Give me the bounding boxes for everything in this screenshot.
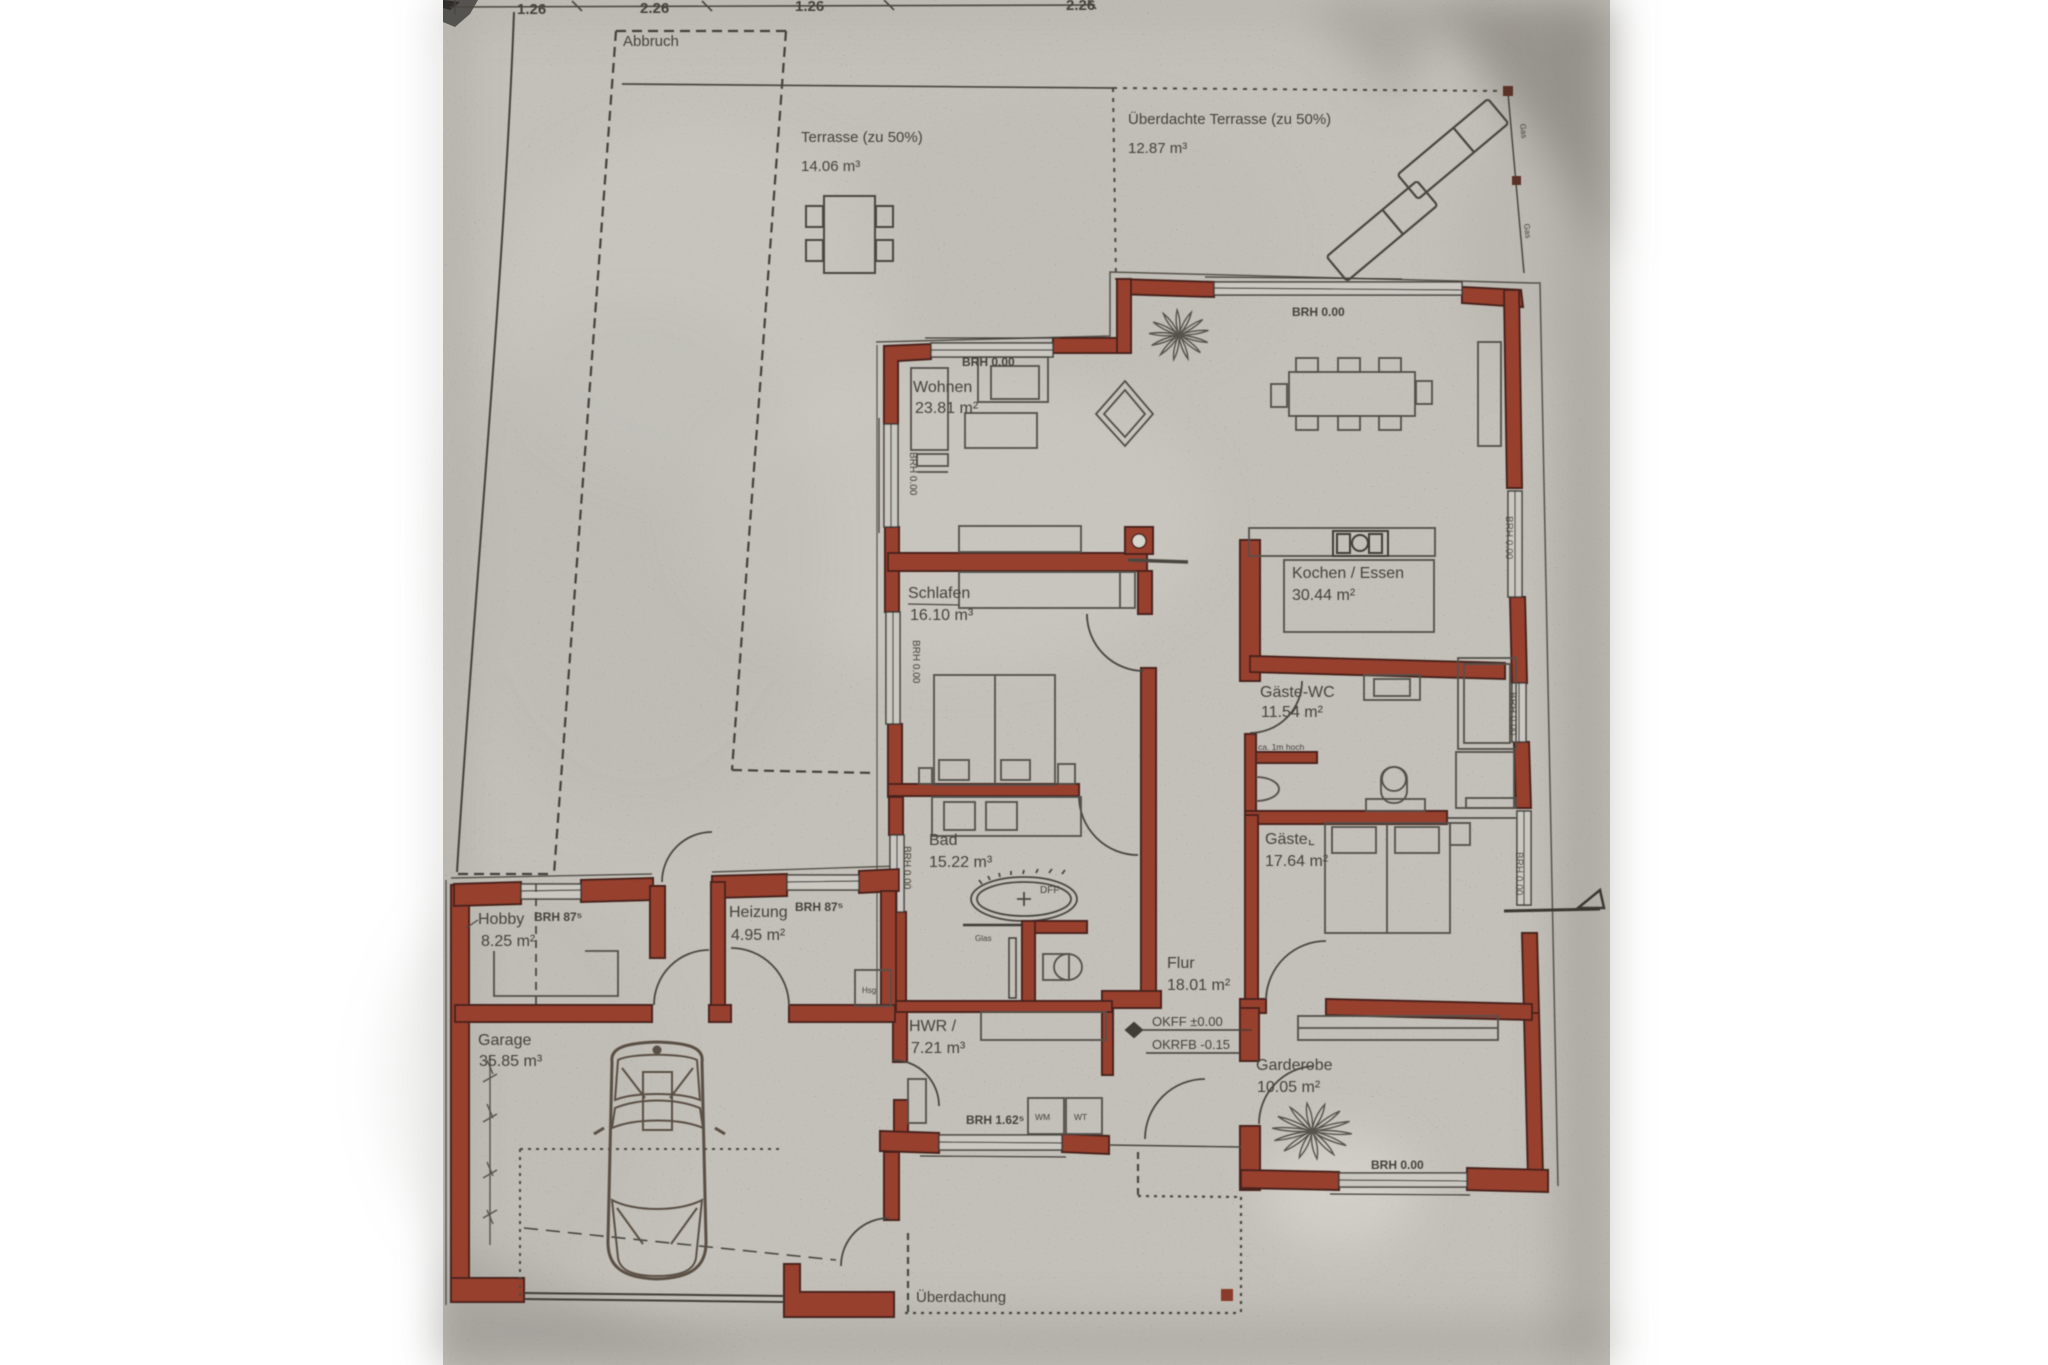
svg-text:17.64 m²: 17.64 m² bbox=[1265, 853, 1329, 870]
svg-text:Terrasse (zu 50%): Terrasse (zu 50%) bbox=[801, 129, 923, 146]
svg-text:Heizung: Heizung bbox=[729, 904, 788, 921]
svg-text:Glas: Glas bbox=[975, 934, 991, 943]
svg-text:BRH 0.00: BRH 0.00 bbox=[1503, 516, 1514, 560]
svg-text:1.26: 1.26 bbox=[517, 1, 546, 18]
svg-text:16.10 m³: 16.10 m³ bbox=[910, 607, 974, 624]
svg-text:8.25 m²: 8.25 m² bbox=[481, 933, 536, 950]
svg-text:7.21 m³: 7.21 m³ bbox=[911, 1040, 966, 1057]
svg-text:BRH 1.62⁵: BRH 1.62⁵ bbox=[966, 1113, 1024, 1127]
svg-text:BRH 0.00: BRH 0.00 bbox=[1513, 852, 1524, 896]
svg-text:35.85 m³: 35.85 m³ bbox=[479, 1053, 543, 1070]
svg-text:Hobby: Hobby bbox=[478, 911, 524, 928]
svg-text:BRH 87⁵: BRH 87⁵ bbox=[795, 900, 843, 914]
svg-text:Abbruch: Abbruch bbox=[623, 33, 679, 50]
svg-text:BRH 0.00: BRH 0.00 bbox=[962, 355, 1015, 369]
svg-text:15.22 m³: 15.22 m³ bbox=[929, 854, 993, 871]
svg-text:BRH 0.00: BRH 0.00 bbox=[910, 640, 921, 684]
svg-text:Kochen / Essen: Kochen / Essen bbox=[1292, 565, 1404, 582]
svg-text:Garderobe: Garderobe bbox=[1256, 1057, 1333, 1074]
svg-text:DFF: DFF bbox=[1040, 885, 1059, 896]
svg-text:1.26: 1.26 bbox=[795, 0, 824, 15]
svg-text:Schlafen: Schlafen bbox=[908, 585, 970, 602]
svg-text:4.95 m²: 4.95 m² bbox=[731, 927, 786, 944]
svg-text:Wohnen: Wohnen bbox=[913, 379, 972, 396]
svg-text:OKFF ±0.00: OKFF ±0.00 bbox=[1152, 1014, 1223, 1029]
svg-text:Bad: Bad bbox=[929, 832, 957, 849]
svg-text:WM: WM bbox=[1035, 1112, 1050, 1122]
svg-text:23.81 m²: 23.81 m² bbox=[915, 400, 979, 417]
svg-text:ca. 1m hoch: ca. 1m hoch bbox=[1258, 742, 1305, 752]
svg-text:Hsg: Hsg bbox=[862, 986, 876, 995]
svg-text:10.05 m²: 10.05 m² bbox=[1257, 1079, 1321, 1096]
svg-text:Gas: Gas bbox=[1518, 123, 1529, 139]
svg-text:HWR /: HWR / bbox=[909, 1018, 957, 1035]
svg-text:Überdachte Terrasse (zu 50%): Überdachte Terrasse (zu 50%) bbox=[1128, 110, 1331, 128]
svg-text:WT: WT bbox=[1074, 1112, 1087, 1122]
svg-text:BRH 0.00: BRH 0.00 bbox=[1371, 1158, 1424, 1172]
svg-text:Flur: Flur bbox=[1167, 955, 1195, 972]
svg-text:BRH 0.00: BRH 0.00 bbox=[1507, 692, 1518, 736]
svg-text:BRH 0.00: BRH 0.00 bbox=[1292, 305, 1345, 319]
svg-text:BRH 0.00: BRH 0.00 bbox=[907, 452, 918, 496]
svg-text:Gas: Gas bbox=[1522, 223, 1533, 239]
svg-text:2.26: 2.26 bbox=[1066, 0, 1095, 14]
svg-text:Gäste⌞: Gäste⌞ bbox=[1265, 831, 1315, 848]
svg-text:Überdachung: Überdachung bbox=[916, 1288, 1006, 1306]
svg-text:Gäste-WC: Gäste-WC bbox=[1260, 684, 1335, 701]
svg-text:OKRFB -0.15: OKRFB -0.15 bbox=[1152, 1037, 1230, 1052]
svg-text:BRH 87⁵: BRH 87⁵ bbox=[534, 910, 582, 924]
svg-text:BRH 0.00: BRH 0.00 bbox=[901, 846, 912, 890]
svg-text:12.87 m³: 12.87 m³ bbox=[1128, 140, 1187, 157]
svg-text:2.26: 2.26 bbox=[640, 0, 669, 17]
svg-text:11.54 m²: 11.54 m² bbox=[1261, 704, 1324, 721]
svg-text:30.44 m²: 30.44 m² bbox=[1292, 587, 1356, 604]
svg-text:18.01 m²: 18.01 m² bbox=[1167, 977, 1231, 994]
svg-text:14.06 m³: 14.06 m³ bbox=[801, 158, 860, 175]
svg-text:Garage: Garage bbox=[478, 1032, 531, 1049]
